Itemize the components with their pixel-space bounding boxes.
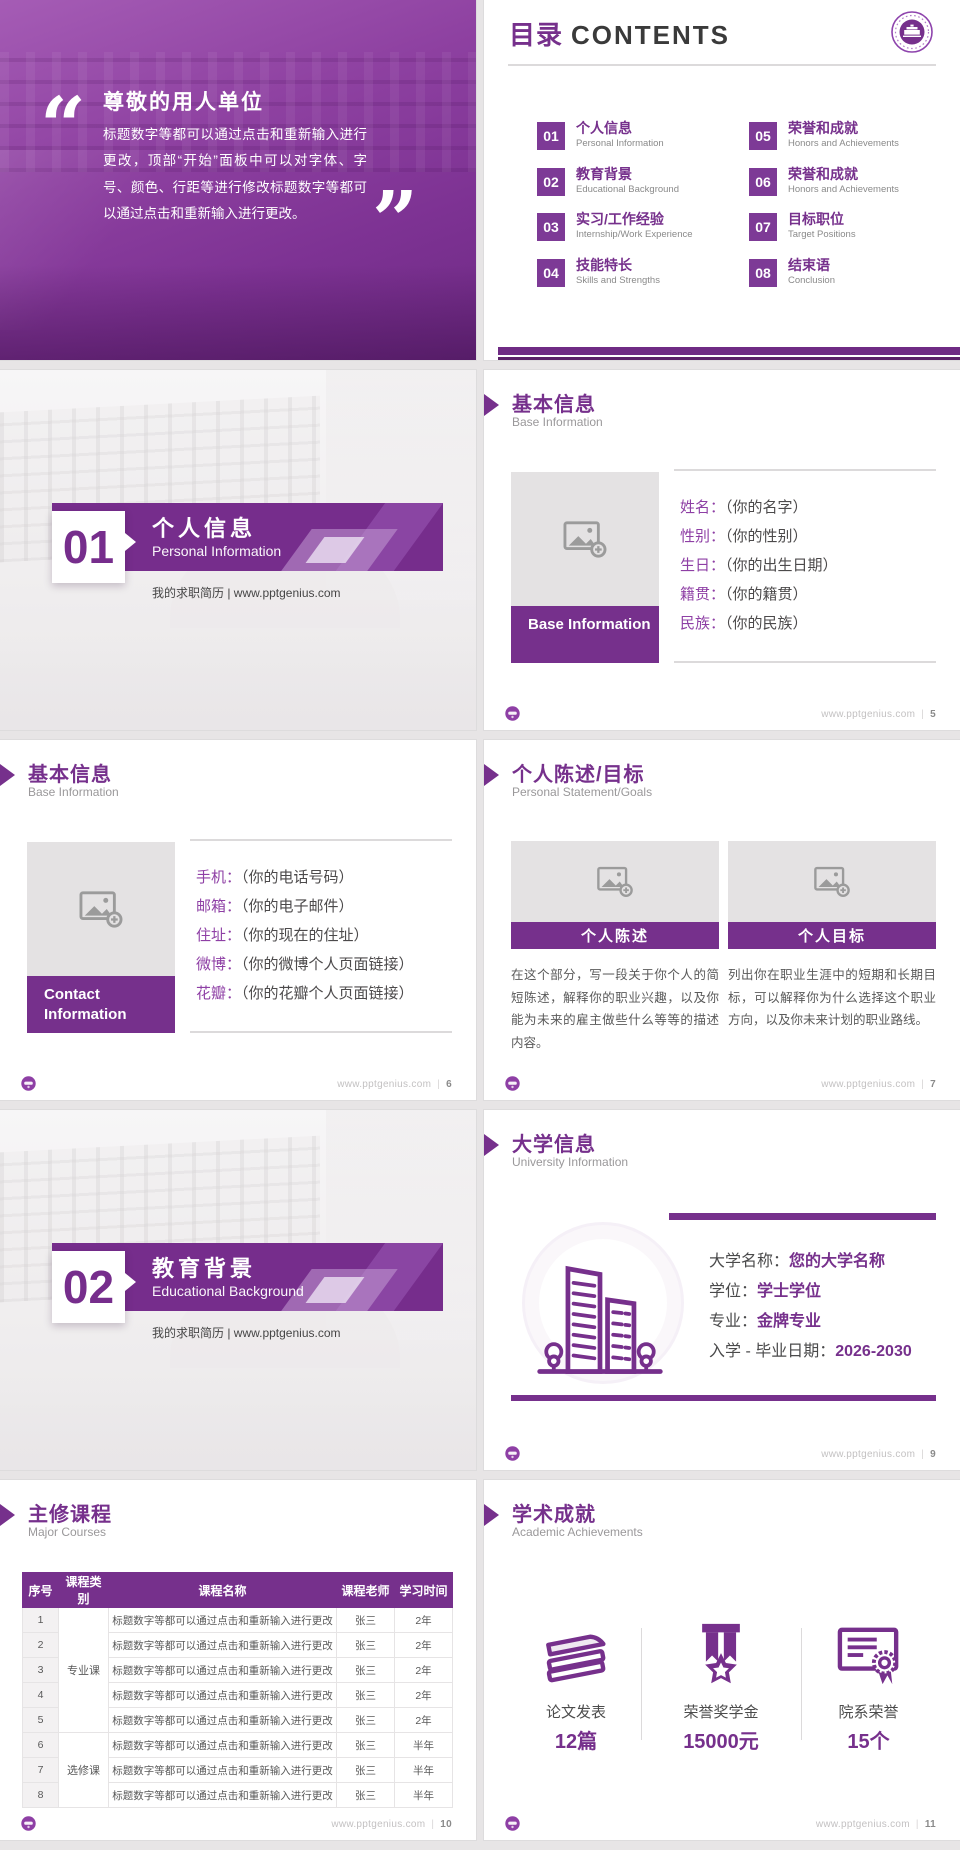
- toc-label-zh: 技能特长: [576, 257, 660, 273]
- arrow-right-icon: [125, 533, 136, 551]
- slide-heading-en: Base Information: [512, 415, 603, 429]
- card-body-text: 列出你在职业生涯中的短期和长期目标，可以解释你为什么选择这个职业方向，以及你未来…: [728, 964, 936, 1032]
- heading-arrow-icon: [484, 394, 499, 416]
- cell-duration: 半年: [395, 1783, 453, 1808]
- toc-label-en: Personal Information: [576, 138, 664, 149]
- cover-body-text: 标题数字等都可以通过点击和重新输入进行更改，顶部“开始”面板中可以对字体、字号、…: [103, 122, 367, 227]
- toc-label-zh: 结束语: [788, 257, 835, 273]
- column-header-teacher: 课程老师: [337, 1573, 395, 1608]
- photo-shade: [0, 265, 476, 360]
- card-title-banner: 个人陈述: [511, 922, 719, 949]
- photo-placeholder[interactable]: [27, 842, 175, 976]
- footer-site: www.pptgenius.com: [337, 1079, 431, 1090]
- cell-duration: 2年: [395, 1608, 453, 1633]
- cell-teacher: 张三: [337, 1783, 395, 1808]
- title-divider: [508, 64, 936, 66]
- achievement-stats: 论文发表 12篇 荣誉奖学金 15000元: [511, 1622, 936, 1754]
- cell-no: 7: [23, 1758, 59, 1783]
- open-quote-icon: “: [40, 86, 86, 166]
- field-enrollment-dates: 入学 - 毕业日期：2026-2030: [709, 1337, 912, 1367]
- toc-item-skills[interactable]: 04 技能特长Skills and Strengths: [537, 257, 749, 303]
- close-quote-icon: ”: [372, 180, 418, 260]
- field-value: （你的名字）: [725, 499, 808, 516]
- table-row: 1 专业课 标题数字等都可以通过点击和重新输入进行更改 张三 2年: [23, 1608, 453, 1633]
- slide-heading-en: Personal Statement/Goals: [512, 785, 652, 799]
- field-label: 邮箱：: [196, 898, 241, 915]
- bottom-accent-line: [498, 357, 960, 360]
- divider-line: [190, 1031, 452, 1033]
- toc-number-badge: 05: [749, 122, 777, 150]
- field-value: 您的大学名称: [789, 1253, 885, 1270]
- field-label: 大学名称：: [709, 1253, 789, 1270]
- water-reflection-shape: [0, 645, 476, 730]
- photo-placeholder[interactable]: [728, 841, 936, 922]
- stat-value: 15000元: [641, 1725, 801, 1754]
- campus-building-icon: [534, 1248, 666, 1385]
- footer-site: www.pptgenius.com: [821, 1449, 915, 1460]
- heading-arrow-icon: [0, 764, 15, 786]
- bottom-accent-bar: [498, 347, 960, 355]
- toc-label-zh: 个人信息: [576, 120, 664, 136]
- footer-separator: |: [921, 1449, 924, 1460]
- field-university-name: 大学名称：您的大学名称: [709, 1247, 912, 1277]
- section-title-zh: 个人信息: [152, 511, 256, 543]
- card-title-banner: 个人目标: [728, 922, 936, 949]
- field-degree: 学位：学士学位: [709, 1277, 912, 1307]
- toc-label-zh: 目标职位: [788, 211, 856, 227]
- field-label: 手机：: [196, 869, 241, 886]
- contents-title-zh: 目录: [509, 20, 563, 50]
- section-number-box: 02: [52, 1251, 125, 1323]
- column-header-category: 课程类别: [59, 1573, 109, 1608]
- field-label: 花瓣：: [196, 985, 241, 1002]
- page-number: 6: [446, 1079, 452, 1090]
- accent-bar-bottom: [511, 1395, 936, 1401]
- pptgenius-logo: [505, 1446, 520, 1461]
- cell-course-name: 标题数字等都可以通过点击和重新输入进行更改: [109, 1683, 337, 1708]
- university-fields: 大学名称：您的大学名称 学位：学士学位 专业：金牌专业 入学 - 毕业日期：20…: [709, 1247, 912, 1367]
- personal-statement-card: 个人陈述 在这个部分，写一段关于你个人的简短陈述，解释你的职业兴趣，以及你能为未…: [511, 841, 719, 1054]
- field-label: 住址：: [196, 927, 241, 944]
- footer-site: www.pptgenius.com: [331, 1819, 425, 1830]
- toc-label-en: Target Positions: [788, 229, 856, 240]
- toc-label-en: Honors and Achievements: [788, 184, 899, 195]
- cell-course-name: 标题数字等都可以通过点击和重新输入进行更改: [109, 1783, 337, 1808]
- photo-caption-badge: Base Information: [511, 606, 659, 663]
- stat-value: 15个: [801, 1725, 936, 1754]
- university-emblem-logo: [890, 10, 934, 59]
- cell-no: 8: [23, 1783, 59, 1808]
- contact-fields: 手机：（你的电话号码） 邮箱：（你的电子邮件） 住址：（你的现在的住址） 微博：…: [196, 866, 414, 1011]
- field-label: 微博：: [196, 956, 241, 973]
- slide-heading-en: Major Courses: [28, 1525, 106, 1539]
- field-name: 姓名：（你的名字）: [680, 496, 838, 525]
- field-label: 民族：: [680, 615, 725, 632]
- photo-placeholder[interactable]: [511, 841, 719, 922]
- courses-table: 序号 课程类别 课程名称 课程老师 学习时间 1 专业课 标题数字等都可以通过点…: [22, 1572, 453, 1808]
- image-placeholder-icon: [562, 518, 608, 560]
- cell-duration: 半年: [395, 1733, 453, 1758]
- divider-line: [190, 839, 452, 841]
- slide-heading-zh: 个人陈述/目标: [512, 758, 645, 787]
- cell-teacher: 张三: [337, 1633, 395, 1658]
- slide-heading-zh: 大学信息: [512, 1128, 596, 1157]
- field-major: 专业：金牌专业: [709, 1307, 912, 1337]
- stat-value: 12篇: [511, 1725, 641, 1754]
- field-label: 生日：: [680, 557, 725, 574]
- page-number: 9: [930, 1449, 936, 1460]
- section-tagline: 我的求职简历 | www.pptgenius.com: [152, 584, 341, 601]
- field-value: （你的现在的住址）: [241, 927, 369, 944]
- cell-no: 5: [23, 1708, 59, 1733]
- medal-icon: [641, 1622, 801, 1688]
- field-birthday: 生日：（你的出生日期）: [680, 554, 838, 583]
- image-placeholder-icon: [813, 864, 851, 899]
- toc-number-badge: 06: [749, 168, 777, 196]
- stat-label: 荣誉奖学金: [641, 1701, 801, 1722]
- card-body-text: 在这个部分，写一段关于你个人的简短陈述，解释你的职业兴趣，以及你能为未来的雇主做…: [511, 964, 719, 1054]
- base-info-fields: 姓名：（你的名字） 性别：（你的性别） 生日：（你的出生日期） 籍贯：（你的籍贯…: [680, 496, 838, 641]
- column-header-course-name: 课程名称: [109, 1573, 337, 1608]
- toc-number-badge: 04: [537, 259, 565, 287]
- page-number: 11: [925, 1819, 936, 1830]
- slide-contact-information[interactable]: 基本信息 Base Information Contact Informatio…: [0, 740, 476, 1100]
- cell-course-name: 标题数字等都可以通过点击和重新输入进行更改: [109, 1658, 337, 1683]
- toc-label-en: Educational Background: [576, 184, 679, 195]
- slide-contents[interactable]: 目录CONTENTS 01 个人信息Personal Information 0…: [484, 0, 960, 360]
- field-value: （你的花瓣个人页面链接）: [241, 985, 414, 1002]
- field-value: 2026-2030: [835, 1343, 912, 1360]
- heading-arrow-icon: [484, 1134, 499, 1156]
- cell-duration: 2年: [395, 1633, 453, 1658]
- field-value: （你的电子邮件）: [241, 898, 354, 915]
- cell-no: 6: [23, 1733, 59, 1758]
- slide-heading-zh: 基本信息: [512, 388, 596, 417]
- field-gender: 性别：（你的性别）: [680, 525, 838, 554]
- photo-placeholder[interactable]: [511, 472, 659, 606]
- field-value: （你的出生日期）: [725, 557, 838, 574]
- cell-category-elective: 选修课: [59, 1733, 109, 1808]
- toc-number-badge: 08: [749, 259, 777, 287]
- toc-number-badge: 07: [749, 213, 777, 241]
- cell-course-name: 标题数字等都可以通过点击和重新输入进行更改: [109, 1608, 337, 1633]
- cell-duration: 2年: [395, 1658, 453, 1683]
- slide-footer: www.pptgenius.com|5: [821, 709, 936, 720]
- slide-academic-achievements[interactable]: 学术成就 Academic Achievements 论文发表 12篇: [484, 1480, 960, 1840]
- footer-separator: |: [431, 1819, 434, 1830]
- slide-footer: www.pptgenius.com|11: [816, 1819, 936, 1830]
- slide-base-information[interactable]: 基本信息 Base Information Base Information 姓…: [484, 370, 960, 730]
- cell-course-name: 标题数字等都可以通过点击和重新输入进行更改: [109, 1708, 337, 1733]
- toc-label-zh: 荣誉和成就: [788, 120, 899, 136]
- toc-item-personal-information[interactable]: 01 个人信息Personal Information: [537, 120, 749, 166]
- field-label: 姓名：: [680, 499, 725, 516]
- section-title-zh: 教育背景: [152, 1251, 256, 1283]
- cell-category-required: 专业课: [59, 1608, 109, 1733]
- table-row: 6 选修课 标题数字等都可以通过点击和重新输入进行更改 张三 半年: [23, 1733, 453, 1758]
- field-huaban: 花瓣：（你的花瓣个人页面链接）: [196, 982, 414, 1011]
- toc-label-en: Conclusion: [788, 275, 835, 286]
- field-label: 专业：: [709, 1313, 757, 1330]
- slide-preview-grid: “ 尊敬的用人单位 标题数字等都可以通过点击和重新输入进行更改，顶部“开始”面板…: [0, 0, 960, 1840]
- arrow-right-icon: [125, 1273, 136, 1291]
- footer-separator: |: [921, 709, 924, 720]
- footer-site: www.pptgenius.com: [821, 1079, 915, 1090]
- pptgenius-logo: [21, 1816, 36, 1831]
- toc-item-honors-1[interactable]: 05 荣誉和成就Honors and Achievements: [749, 120, 941, 166]
- heading-arrow-icon: [0, 1504, 15, 1526]
- cell-teacher: 张三: [337, 1708, 395, 1733]
- slide-footer: www.pptgenius.com|6: [337, 1079, 452, 1090]
- slide-section-02[interactable]: 教育背景 Educational Background 02 我的求职简历 | …: [0, 1110, 476, 1470]
- field-value: （你的籍贯）: [725, 586, 808, 603]
- contents-title: 目录CONTENTS: [509, 15, 730, 52]
- footer-site: www.pptgenius.com: [816, 1819, 910, 1830]
- slide-heading-en: Academic Achievements: [512, 1525, 643, 1539]
- footer-separator: |: [916, 1819, 919, 1830]
- toc-item-conclusion[interactable]: 08 结束语Conclusion: [749, 257, 941, 303]
- cell-duration: 2年: [395, 1683, 453, 1708]
- toc-label-en: Skills and Strengths: [576, 275, 660, 286]
- cell-no: 4: [23, 1683, 59, 1708]
- cell-course-name: 标题数字等都可以通过点击和重新输入进行更改: [109, 1758, 337, 1783]
- slide-heading-zh: 学术成就: [512, 1498, 596, 1527]
- toc-number-badge: 01: [537, 122, 565, 150]
- contents-list: 01 个人信息Personal Information 02 教育背景Educa…: [537, 120, 941, 302]
- stat-label: 院系荣誉: [801, 1701, 936, 1722]
- toc-label-zh: 实习/工作经验: [576, 211, 693, 227]
- pptgenius-logo: [21, 1076, 36, 1091]
- personal-goals-card: 个人目标 列出你在职业生涯中的短期和长期目标，可以解释你为什么选择这个职业方向，…: [728, 841, 936, 1032]
- page-number: 7: [930, 1079, 936, 1090]
- cell-no: 3: [23, 1658, 59, 1683]
- slide-footer: www.pptgenius.com|9: [821, 1449, 936, 1460]
- toc-label-en: Honors and Achievements: [788, 138, 899, 149]
- toc-label-en: Internship/Work Experience: [576, 229, 693, 240]
- accent-bar-top: [669, 1213, 936, 1220]
- image-placeholder-icon: [596, 864, 634, 899]
- slide-heading-en: University Information: [512, 1155, 628, 1169]
- toc-item-target-positions[interactable]: 07 目标职位Target Positions: [749, 211, 941, 257]
- cover-title: 尊敬的用人单位: [103, 86, 264, 116]
- field-label: 入学 - 毕业日期：: [709, 1343, 835, 1360]
- cell-teacher: 张三: [337, 1733, 395, 1758]
- slide-footer: www.pptgenius.com|10: [331, 1819, 452, 1830]
- divider-line: [674, 661, 936, 663]
- papers-icon: [511, 1622, 641, 1688]
- cell-teacher: 张三: [337, 1658, 395, 1683]
- cell-teacher: 张三: [337, 1683, 395, 1708]
- field-weibo: 微博：（你的微博个人页面链接）: [196, 953, 414, 982]
- table-header-row: 序号 课程类别 课程名称 课程老师 学习时间: [23, 1573, 453, 1608]
- stat-department-honors: 院系荣誉 15个: [801, 1622, 936, 1754]
- cell-teacher: 张三: [337, 1758, 395, 1783]
- pptgenius-logo: [505, 1816, 520, 1831]
- slide-heading-en: Base Information: [28, 785, 119, 799]
- pptgenius-logo: [505, 1076, 520, 1091]
- footer-site: www.pptgenius.com: [821, 709, 915, 720]
- toc-item-educational-background[interactable]: 02 教育背景Educational Background: [537, 166, 749, 212]
- page-number: 5: [930, 709, 936, 720]
- slide-footer: www.pptgenius.com|7: [821, 1079, 936, 1090]
- section-tagline: 我的求职简历 | www.pptgenius.com: [152, 1324, 341, 1341]
- section-number-box: 01: [52, 511, 125, 583]
- page-number: 10: [440, 1819, 452, 1830]
- certificate-icon: [801, 1622, 936, 1688]
- footer-separator: |: [921, 1079, 924, 1090]
- water-reflection-shape: [0, 1385, 476, 1470]
- stat-papers-published: 论文发表 12篇: [511, 1622, 641, 1754]
- field-value: （你的电话号码）: [241, 869, 354, 886]
- cell-no: 1: [23, 1608, 59, 1633]
- field-email: 邮箱：（你的电子邮件）: [196, 895, 414, 924]
- stat-honor-scholarship: 荣誉奖学金 15000元: [641, 1622, 801, 1754]
- slide-major-courses[interactable]: 主修课程 Major Courses 序号 课程类别 课程名称 课程老师 学习时…: [0, 1480, 476, 1840]
- section-title-en: Educational Background: [152, 1283, 304, 1299]
- cell-no: 2: [23, 1633, 59, 1658]
- section-title-en: Personal Information: [152, 543, 281, 559]
- field-value: （你的民族）: [725, 615, 808, 632]
- field-value: （你的微博个人页面链接）: [241, 956, 414, 973]
- field-value: 金牌专业: [757, 1313, 821, 1330]
- image-placeholder-icon: [78, 888, 124, 930]
- field-value: （你的性别）: [725, 528, 808, 545]
- slide-cover-quote[interactable]: “ 尊敬的用人单位 标题数字等都可以通过点击和重新输入进行更改，顶部“开始”面板…: [0, 0, 476, 360]
- field-label: 学位：: [709, 1283, 757, 1300]
- heading-arrow-icon: [484, 764, 499, 786]
- slide-university-information[interactable]: 大学信息 University Information: [484, 1110, 960, 1470]
- pptgenius-logo: [505, 706, 520, 721]
- cell-duration: 2年: [395, 1708, 453, 1733]
- field-phone: 手机：（你的电话号码）: [196, 866, 414, 895]
- slide-section-01[interactable]: 个人信息 Personal Information 01 我的求职简历 | ww…: [0, 370, 476, 730]
- footer-separator: |: [437, 1079, 440, 1090]
- contents-title-en: CONTENTS: [571, 20, 730, 50]
- toc-label-zh: 教育背景: [576, 166, 679, 182]
- field-label: 性别：: [680, 528, 725, 545]
- column-header-duration: 学习时间: [395, 1573, 453, 1608]
- toc-item-work-experience[interactable]: 03 实习/工作经验Internship/Work Experience: [537, 211, 749, 257]
- slide-heading-zh: 基本信息: [28, 758, 112, 787]
- field-label: 籍贯：: [680, 586, 725, 603]
- cell-course-name: 标题数字等都可以通过点击和重新输入进行更改: [109, 1633, 337, 1658]
- photo-caption-badge: Contact Information: [27, 976, 175, 1033]
- toc-number-badge: 03: [537, 213, 565, 241]
- divider-line: [674, 469, 936, 471]
- cell-course-name: 标题数字等都可以通过点击和重新输入进行更改: [109, 1733, 337, 1758]
- field-address: 住址：（你的现在的住址）: [196, 924, 414, 953]
- field-hometown: 籍贯：（你的籍贯）: [680, 583, 838, 612]
- column-header-no: 序号: [23, 1573, 59, 1608]
- toc-item-honors-2[interactable]: 06 荣誉和成就Honors and Achievements: [749, 166, 941, 212]
- field-ethnicity: 民族：（你的民族）: [680, 612, 838, 641]
- slide-personal-statement[interactable]: 个人陈述/目标 Personal Statement/Goals 个人陈述 在这…: [484, 740, 960, 1100]
- slide-heading-zh: 主修课程: [28, 1498, 112, 1527]
- heading-arrow-icon: [484, 1504, 499, 1526]
- stat-label: 论文发表: [511, 1701, 641, 1722]
- toc-label-zh: 荣誉和成就: [788, 166, 899, 182]
- cell-teacher: 张三: [337, 1608, 395, 1633]
- field-value: 学士学位: [757, 1283, 821, 1300]
- toc-number-badge: 02: [537, 168, 565, 196]
- cell-duration: 半年: [395, 1758, 453, 1783]
